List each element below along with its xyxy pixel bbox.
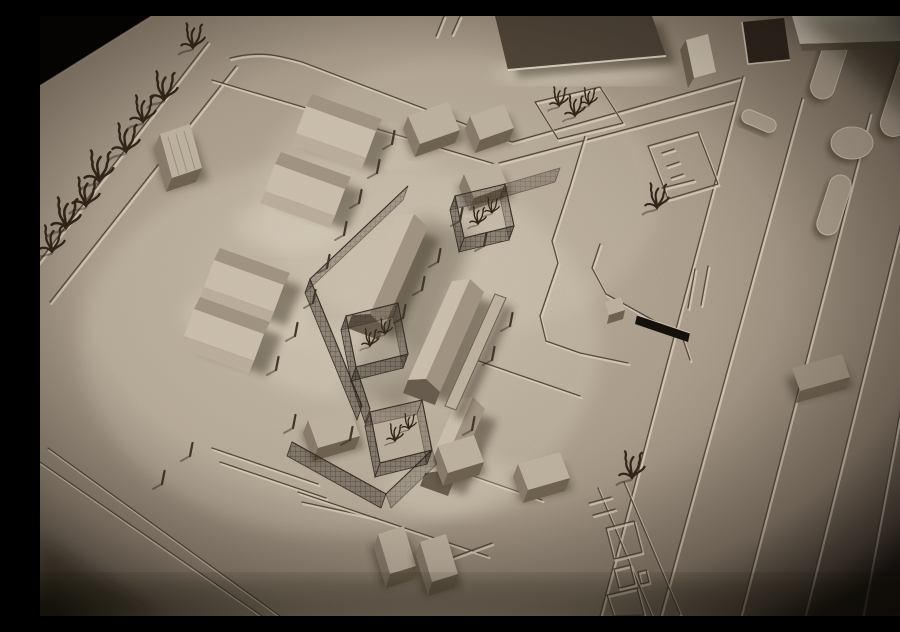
film-grain xyxy=(40,16,900,616)
architectural-model-photo xyxy=(40,16,900,616)
model-photograph xyxy=(40,16,900,616)
